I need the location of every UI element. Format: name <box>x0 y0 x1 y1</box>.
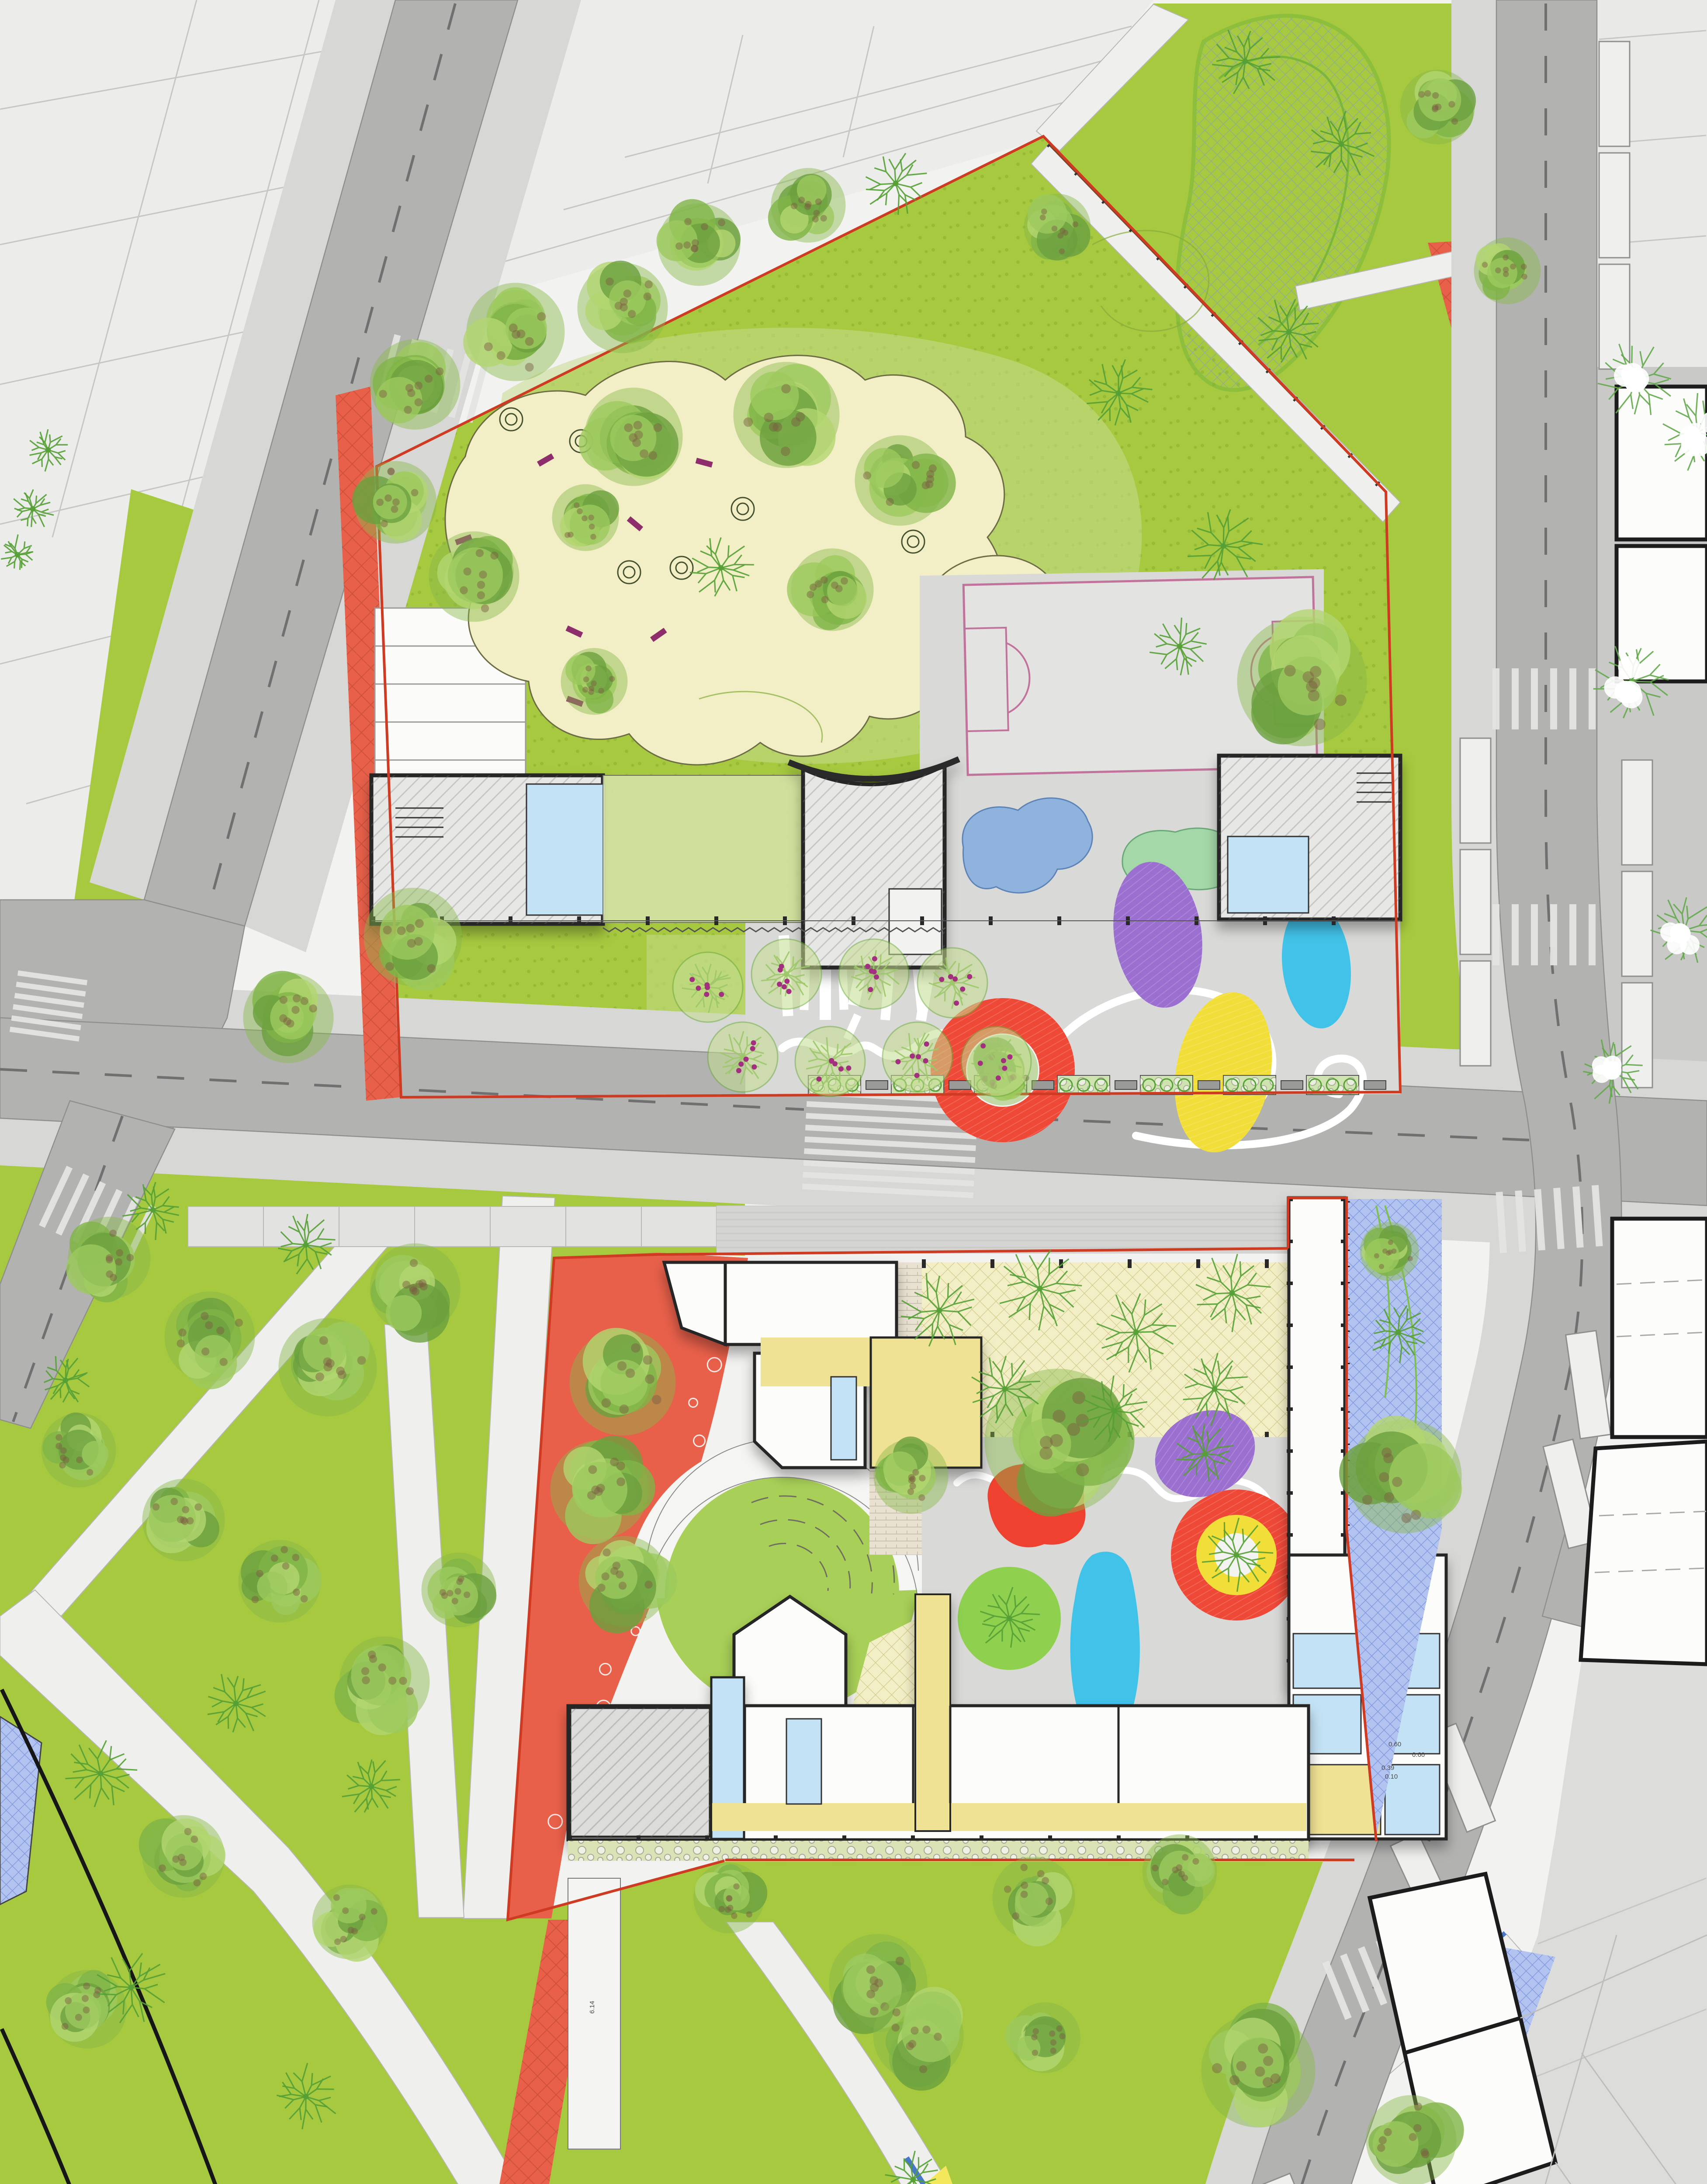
tree-orchard <box>795 1026 865 1096</box>
crossing-stripe <box>1569 904 1576 965</box>
school-pavilion-east <box>1219 756 1400 919</box>
building-east-a <box>1617 387 1707 539</box>
tree-watercolor <box>370 339 461 430</box>
bench <box>1115 1081 1137 1089</box>
crossing-stripe <box>1531 668 1538 729</box>
tree-watercolor <box>1474 238 1541 304</box>
tree-watercolor <box>42 1413 116 1488</box>
tree-orchard <box>961 1026 1031 1096</box>
parking-bay <box>1599 41 1630 146</box>
parking-bay <box>1622 871 1652 976</box>
tree-watercolor <box>1024 194 1091 261</box>
dimension-label: 0.60 <box>1388 1741 1401 1748</box>
corridor-link <box>915 1594 950 1831</box>
tree-watercolor <box>429 532 519 622</box>
sanitary-room <box>1228 836 1309 913</box>
tree-orchard <box>883 1022 952 1092</box>
dimension-label: 0.60 <box>1412 1751 1425 1759</box>
parking-bay <box>1460 961 1491 1066</box>
tree-watercolor <box>552 484 619 551</box>
sanitary-room <box>831 1377 856 1460</box>
tree-watercolor <box>561 648 628 715</box>
crossing-stripe <box>1492 904 1499 965</box>
tree-watercolor <box>279 1318 377 1417</box>
tree-watercolor <box>422 1553 497 1628</box>
bench <box>1281 1081 1303 1089</box>
site-plan-page: 6.14 0.60 0.60 0.39 0.10 <box>0 0 1707 2184</box>
sanitary-room <box>786 1719 821 1804</box>
crossing-stripe <box>1492 668 1499 729</box>
crossing-stripe <box>1512 904 1519 965</box>
crossing-stripe <box>1589 904 1596 965</box>
building-east-d <box>1581 1441 1707 1664</box>
parking-bay <box>1622 983 1652 1088</box>
parking-bay <box>1599 264 1630 369</box>
corridor-floor-south <box>712 1803 1306 1831</box>
tree-orchard <box>673 952 743 1022</box>
tree-orchard <box>751 939 821 1009</box>
dimension-label: 6.14 <box>589 2001 596 2014</box>
site-plan-canvas: 6.14 0.60 0.60 0.39 0.10 <box>0 0 1707 2184</box>
building-east-c <box>1612 1219 1707 1437</box>
crossing-stripe <box>1512 668 1519 729</box>
sidewalk-slabs <box>188 1206 717 1247</box>
dimension-label: 0.10 <box>1385 1773 1398 1780</box>
school-pavilion-center <box>789 759 959 968</box>
tree-watercolor <box>142 1479 225 1562</box>
pergola-courtyard <box>603 775 803 923</box>
crossing-stripe <box>1569 668 1576 729</box>
tree-watercolor <box>734 362 840 468</box>
parking-bay <box>1599 153 1630 258</box>
parking-bay <box>1622 760 1652 865</box>
parking-bay <box>1460 738 1491 843</box>
crossing-stripe <box>1589 668 1596 729</box>
crossing-stripe <box>1550 904 1557 965</box>
frontage-paving-texture <box>717 1206 1306 1254</box>
bench <box>1364 1081 1386 1089</box>
parking-bay <box>1460 850 1491 954</box>
dimension-label: 0.39 <box>1382 1764 1394 1772</box>
tree-orchard <box>918 948 987 1018</box>
tree-watercolor <box>1360 1222 1419 1281</box>
crossing-stripe <box>1550 668 1557 729</box>
bench <box>866 1081 888 1089</box>
bench <box>1198 1081 1220 1089</box>
tree-orchard <box>839 939 909 1009</box>
stair-core <box>889 889 942 954</box>
tree-orchard <box>708 1022 778 1092</box>
sanitary-room <box>526 784 605 915</box>
crossing-stripe <box>1531 904 1538 965</box>
